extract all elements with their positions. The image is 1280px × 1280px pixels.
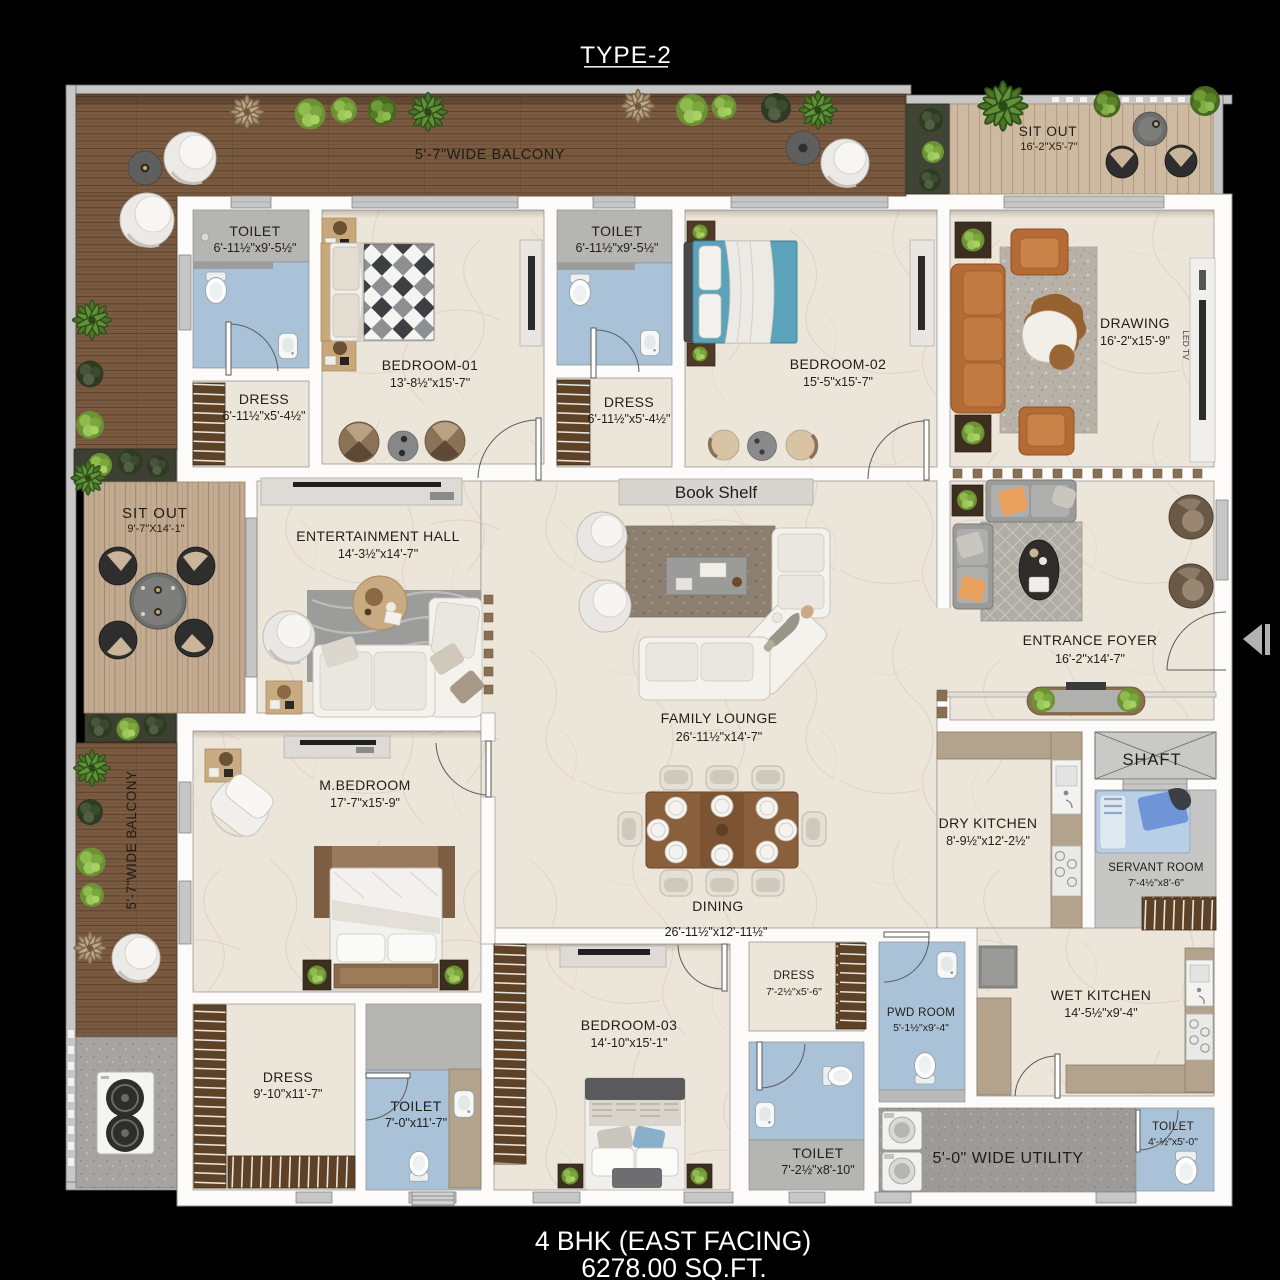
svg-text:LED TV: LED TV (1181, 330, 1191, 360)
svg-text:BEDROOM-01: BEDROOM-01 (382, 357, 479, 373)
svg-text:BEDROOM-02: BEDROOM-02 (790, 356, 887, 372)
svg-text:6'-11½"x9'-5½": 6'-11½"x9'-5½" (214, 241, 297, 255)
svg-text:DRESS: DRESS (239, 391, 289, 407)
svg-text:4'-½"x5'-0": 4'-½"x5'-0" (1148, 1136, 1198, 1148)
svg-text:TOILET: TOILET (390, 1098, 441, 1114)
svg-text:8'-9½"x12'-2½": 8'-9½"x12'-2½" (946, 834, 1030, 848)
svg-text:DRY KITCHEN: DRY KITCHEN (939, 815, 1038, 831)
svg-text:16'-2"X5'-7": 16'-2"X5'-7" (1020, 141, 1077, 153)
svg-text:9'-10"x11'-7": 9'-10"x11'-7" (253, 1087, 322, 1101)
svg-text:14'-5½"x9'-4": 14'-5½"x9'-4" (1064, 1006, 1137, 1020)
svg-text:WET KITCHEN: WET KITCHEN (1051, 987, 1152, 1003)
svg-text:PWD ROOM: PWD ROOM (887, 1007, 955, 1019)
svg-text:SIT OUT: SIT OUT (122, 505, 188, 522)
svg-text:14'-10"x15'-1": 14'-10"x15'-1" (591, 1036, 668, 1050)
svg-text:TYPE-2: TYPE-2 (580, 42, 672, 69)
svg-text:5'-7"WIDE BALCONY: 5'-7"WIDE BALCONY (415, 147, 565, 163)
svg-text:5'-7"WIDE BALCONY: 5'-7"WIDE BALCONY (124, 771, 139, 910)
svg-text:26'-11½"x14'-7": 26'-11½"x14'-7" (676, 730, 762, 744)
svg-text:15'-5"x15'-7": 15'-5"x15'-7" (803, 375, 873, 389)
svg-text:DRESS: DRESS (604, 394, 654, 410)
svg-text:6'-11½"x5'-4½": 6'-11½"x5'-4½" (223, 409, 306, 423)
svg-text:TOILET: TOILET (591, 223, 642, 239)
svg-text:5'-1½"x9'-4": 5'-1½"x9'-4" (893, 1022, 949, 1034)
svg-text:6278.00 SQ.FT.: 6278.00 SQ.FT. (581, 1253, 767, 1280)
svg-text:M.BEDROOM: M.BEDROOM (319, 777, 411, 793)
svg-text:16'-2"x14'-7": 16'-2"x14'-7" (1055, 652, 1125, 666)
svg-text:DINING: DINING (692, 898, 743, 914)
svg-text:FAMILY LOUNGE: FAMILY LOUNGE (661, 710, 778, 726)
svg-text:TOILET: TOILET (792, 1145, 843, 1161)
svg-text:6'-11½"x9'-5½": 6'-11½"x9'-5½" (576, 241, 659, 255)
svg-text:7'-2½"x5'-6": 7'-2½"x5'-6" (766, 986, 822, 998)
svg-text:17'-7"x15'-9": 17'-7"x15'-9" (330, 796, 400, 810)
svg-text:14'-3½"x14'-7": 14'-3½"x14'-7" (338, 547, 418, 561)
svg-text:SIT OUT: SIT OUT (1019, 124, 1078, 139)
svg-text:6'-11½"x5'-4½": 6'-11½"x5'-4½" (588, 412, 671, 426)
svg-text:BEDROOM-03: BEDROOM-03 (581, 1017, 678, 1033)
svg-text:TOILET: TOILET (229, 223, 280, 239)
svg-text:16'-2"x15'-9": 16'-2"x15'-9" (1100, 334, 1170, 348)
svg-text:SHAFT: SHAFT (1122, 751, 1181, 769)
svg-text:13'-8½"x15'-7": 13'-8½"x15'-7" (390, 376, 470, 390)
svg-text:DRAWING: DRAWING (1100, 315, 1170, 331)
svg-text:9'-7"X14'-1": 9'-7"X14'-1" (127, 523, 184, 535)
svg-text:ENTERTAINMENT HALL: ENTERTAINMENT HALL (296, 528, 460, 544)
svg-text:ENTRANCE FOYER: ENTRANCE FOYER (1023, 632, 1158, 648)
svg-text:26'-11½"x12'-11½": 26'-11½"x12'-11½" (665, 925, 768, 939)
svg-text:TOILET: TOILET (1152, 1121, 1194, 1133)
svg-text:SERVANT ROOM: SERVANT ROOM (1108, 862, 1204, 874)
svg-text:4 BHK (EAST FACING): 4 BHK (EAST FACING) (535, 1226, 811, 1256)
svg-text:7'-0"x11'-7": 7'-0"x11'-7" (385, 1116, 447, 1130)
svg-text:DRESS: DRESS (773, 970, 814, 982)
svg-text:5'-0" WIDE UTILITY: 5'-0" WIDE UTILITY (932, 1150, 1083, 1167)
svg-text:7'-2½"x8'-10": 7'-2½"x8'-10" (781, 1163, 854, 1177)
svg-text:DRESS: DRESS (263, 1069, 313, 1085)
svg-text:Book Shelf: Book Shelf (675, 483, 757, 502)
svg-text:7'-4½"x8'-6": 7'-4½"x8'-6" (1128, 877, 1184, 889)
